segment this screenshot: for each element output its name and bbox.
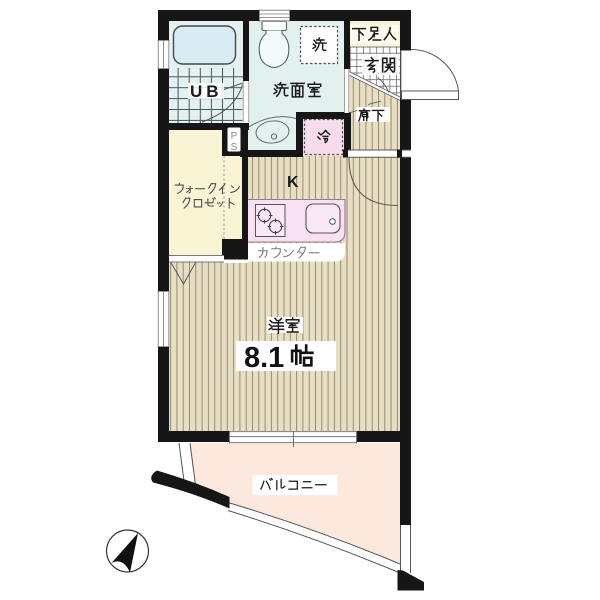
svg-text:UB: UB bbox=[190, 82, 223, 101]
svg-text:K: K bbox=[287, 174, 299, 191]
svg-text:8.1: 8.1 bbox=[244, 342, 284, 374]
svg-text:S: S bbox=[231, 142, 238, 153]
svg-text:P: P bbox=[231, 131, 238, 142]
